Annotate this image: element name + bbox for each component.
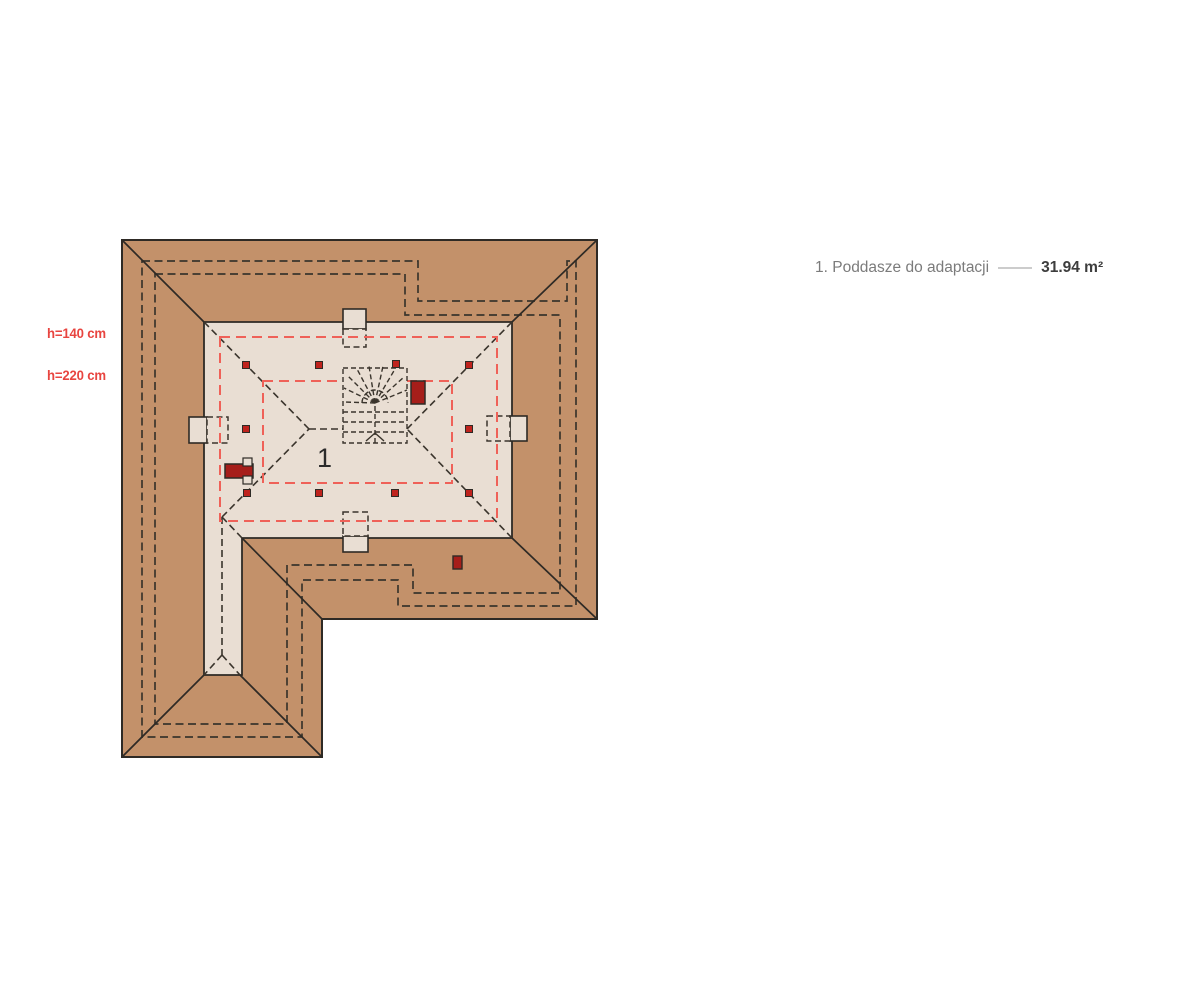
- right-opening-dashed: [487, 416, 510, 441]
- legend-area-value: 31.94 m²: [1041, 259, 1103, 277]
- attic-floor-plan-page: 1 h=140 cm h=220 cm 1. Poddasze do adapt…: [0, 0, 1200, 1000]
- height-label-220: h=220 cm: [47, 367, 106, 383]
- legend-room-label: 1. Poddasze do adaptacji: [815, 259, 989, 277]
- legend-divider-line: [998, 267, 1032, 269]
- right-opening-solid: [510, 416, 527, 441]
- height-label-140: h=140 cm: [47, 325, 106, 341]
- bottom-opening-solid: [343, 536, 368, 552]
- left-opening-dashed: [207, 417, 228, 443]
- chimney-left-flue-bottom: [243, 476, 252, 484]
- floor-plan-drawing: 1: [0, 0, 1200, 1000]
- chimney-roof-bottom: [453, 556, 462, 569]
- top-opening-solid: [343, 309, 366, 329]
- chimney-left-flue-top: [243, 458, 252, 466]
- chimney-near-stairs: [411, 381, 425, 404]
- bottom-opening-dashed: [343, 512, 368, 536]
- staircase: [343, 366, 407, 443]
- left-opening-solid: [189, 417, 207, 443]
- legend: 1. Poddasze do adaptacji 31.94 m²: [815, 259, 1103, 277]
- room-number-label: 1: [317, 443, 332, 473]
